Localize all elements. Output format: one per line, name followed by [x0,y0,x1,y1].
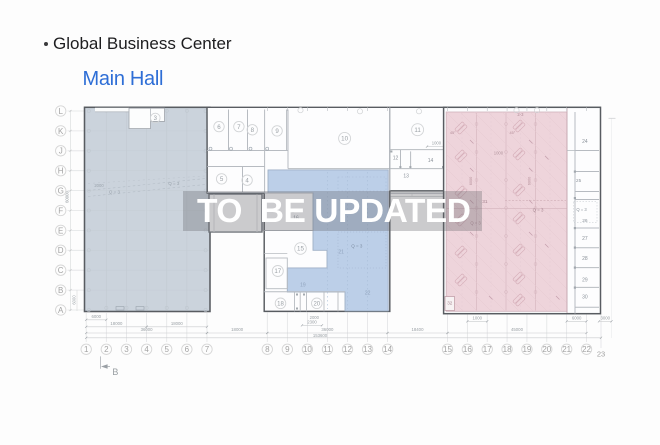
svg-text:26: 26 [582,218,588,224]
svg-text:D: D [58,246,64,255]
svg-text:Q = 3: Q = 3 [168,181,180,186]
svg-text:45000: 45000 [511,327,524,332]
svg-text:153600: 153600 [313,333,328,338]
svg-text:20: 20 [542,345,551,354]
svg-text:6000: 6000 [572,316,582,321]
svg-text:E: E [58,226,63,235]
svg-text:6: 6 [185,345,190,354]
svg-text:27: 27 [582,236,588,242]
svg-text:12: 12 [343,345,352,354]
svg-text:J: J [59,147,63,156]
svg-text:4: 4 [144,345,149,354]
svg-text:18: 18 [503,345,512,354]
svg-text:Q = 3: Q = 3 [533,207,544,212]
svg-text:Q = 3: Q = 3 [576,207,587,212]
svg-text:13: 13 [403,173,409,179]
svg-text:20: 20 [313,301,320,307]
svg-text:9: 9 [275,128,279,135]
svg-text:A: A [58,306,64,315]
svg-text:3: 3 [124,345,129,354]
svg-text:11: 11 [323,345,332,354]
svg-text:6000: 6000 [528,177,532,185]
svg-text:1000: 1000 [494,151,504,156]
svg-text:2-3: 2-3 [517,112,524,117]
svg-text:10: 10 [303,345,312,354]
svg-text:6: 6 [217,124,221,131]
svg-text:16: 16 [463,345,472,354]
svg-text:45°: 45° [510,131,516,135]
svg-text:22: 22 [582,345,591,354]
svg-text:2: 2 [104,345,109,354]
svg-text:C: C [58,266,64,275]
svg-text:B: B [112,367,118,377]
svg-text:18000: 18000 [171,321,184,326]
svg-text:1000: 1000 [432,140,442,145]
svg-text:15: 15 [297,246,304,253]
svg-text:17: 17 [483,345,492,354]
svg-text:11: 11 [414,127,421,134]
svg-text:L: L [58,107,63,116]
svg-text:30: 30 [582,295,588,301]
svg-text:12: 12 [393,156,399,162]
svg-text:8: 8 [265,345,270,354]
svg-text:24: 24 [582,139,588,145]
svg-text:28: 28 [582,256,588,262]
svg-text:29: 29 [582,278,588,284]
svg-text:6000: 6000 [91,314,101,319]
svg-text:H: H [58,167,64,176]
svg-text:18400: 18400 [412,327,425,332]
svg-text:Q = 3: Q = 3 [351,243,363,248]
svg-text:5: 5 [164,345,169,354]
svg-text:25: 25 [576,178,582,183]
svg-text:18: 18 [277,301,284,307]
svg-text:7: 7 [237,124,241,131]
svg-text:23: 23 [597,350,605,359]
svg-text:15: 15 [443,345,452,354]
svg-text:5: 5 [220,176,224,183]
svg-text:F: F [58,206,63,215]
svg-text:1: 1 [84,345,89,354]
svg-text:18000: 18000 [231,327,244,332]
svg-text:13: 13 [363,345,372,354]
svg-text:14: 14 [383,345,392,354]
svg-text:21: 21 [562,345,571,354]
svg-text:6000: 6000 [72,295,77,305]
svg-text:6000: 6000 [469,177,473,185]
svg-text:22: 22 [365,291,371,297]
svg-text:B: B [58,286,63,295]
svg-text:8: 8 [251,127,255,134]
svg-text:31: 31 [482,199,488,205]
svg-text:36000: 36000 [141,327,154,332]
svg-text:19: 19 [522,345,531,354]
svg-text:2300: 2300 [307,320,317,325]
svg-text:2000: 2000 [94,183,104,188]
svg-text:19: 19 [300,283,306,289]
svg-text:Q = 3: Q = 3 [109,190,121,195]
svg-text:45°: 45° [450,131,456,135]
svg-text:10: 10 [341,136,348,143]
svg-text:9: 9 [285,345,290,354]
svg-text:G: G [58,186,64,195]
svg-text:36000: 36000 [321,327,334,332]
svg-text:14: 14 [428,158,434,164]
svg-text:21: 21 [338,250,344,256]
svg-text:4: 4 [245,177,249,184]
svg-text:1000: 1000 [473,316,483,321]
svg-text:32: 32 [447,301,453,306]
svg-text:3000: 3000 [600,316,610,321]
svg-text:K: K [58,127,64,136]
svg-text:17: 17 [274,268,281,275]
svg-text:18000: 18000 [110,321,123,326]
svg-text:7: 7 [205,345,210,354]
